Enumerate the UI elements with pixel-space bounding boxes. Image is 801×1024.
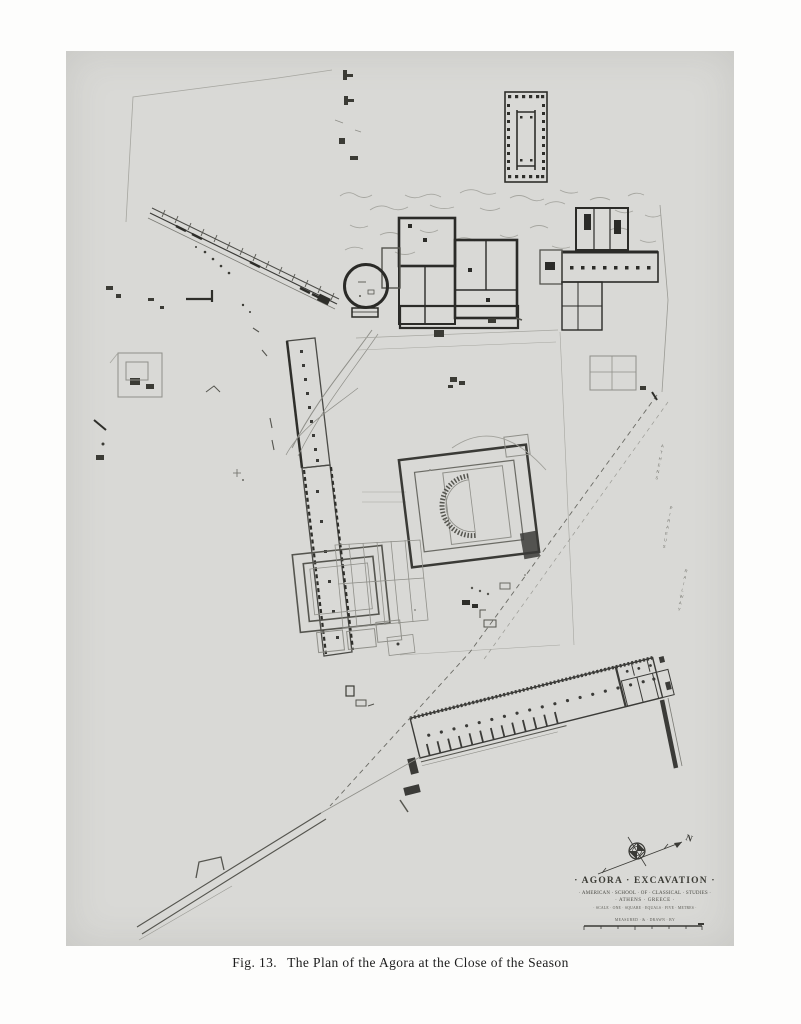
- title-block-title: · AGORA · EXCAVATION ·: [572, 876, 718, 887]
- figure-title: The Plan of the Agora at the Close of th…: [287, 955, 569, 970]
- excavation-boundary-dashed: [330, 395, 668, 806]
- railway-tracks: [148, 208, 339, 309]
- tholos: [345, 265, 388, 318]
- boundary-lines: [126, 70, 668, 392]
- title-block: · AGORA · EXCAVATION · · AMERICAN · SCHO…: [572, 876, 718, 923]
- south-rooms-grid: [335, 540, 428, 656]
- north-building-complex: [382, 218, 518, 328]
- stoa-west-end-ruins: [400, 757, 421, 812]
- west-colonnade-strip: [287, 338, 353, 656]
- title-block-credit: MEASURED · & · DRAWN · BY: [572, 918, 718, 923]
- scale-bar: [584, 924, 704, 930]
- figure-caption: Fig. 13.The Plan of the Agora at the Clo…: [0, 955, 801, 971]
- northeast-building-complex: [540, 208, 658, 330]
- terrain-hatching: [340, 190, 661, 255]
- curved-road: [286, 330, 378, 456]
- left-scattered-ruins: [94, 246, 274, 481]
- stoa-of-attalos: [410, 655, 676, 766]
- top-fragments: [335, 70, 361, 160]
- figure-number: Fig. 13.: [232, 955, 277, 970]
- odeion-of-agrippa: [398, 434, 542, 567]
- title-block-scale-note: · SCALE · ONE · SQUARE · EQUALS · FIVE ·…: [572, 906, 718, 911]
- center-scattered-ruins: [346, 318, 657, 706]
- stoa-spur-wall: [662, 698, 682, 768]
- title-block-institution: · AMERICAN · SCHOOL · OF · CLASSICAL · S…: [572, 890, 718, 897]
- north-arrow: [598, 837, 682, 874]
- agora-plan-drawing: [0, 0, 801, 1024]
- title-block-location: · ATHENS · GREECE ·: [572, 897, 718, 904]
- modern-road: [137, 757, 420, 940]
- hephaisteion-temple: [505, 92, 547, 182]
